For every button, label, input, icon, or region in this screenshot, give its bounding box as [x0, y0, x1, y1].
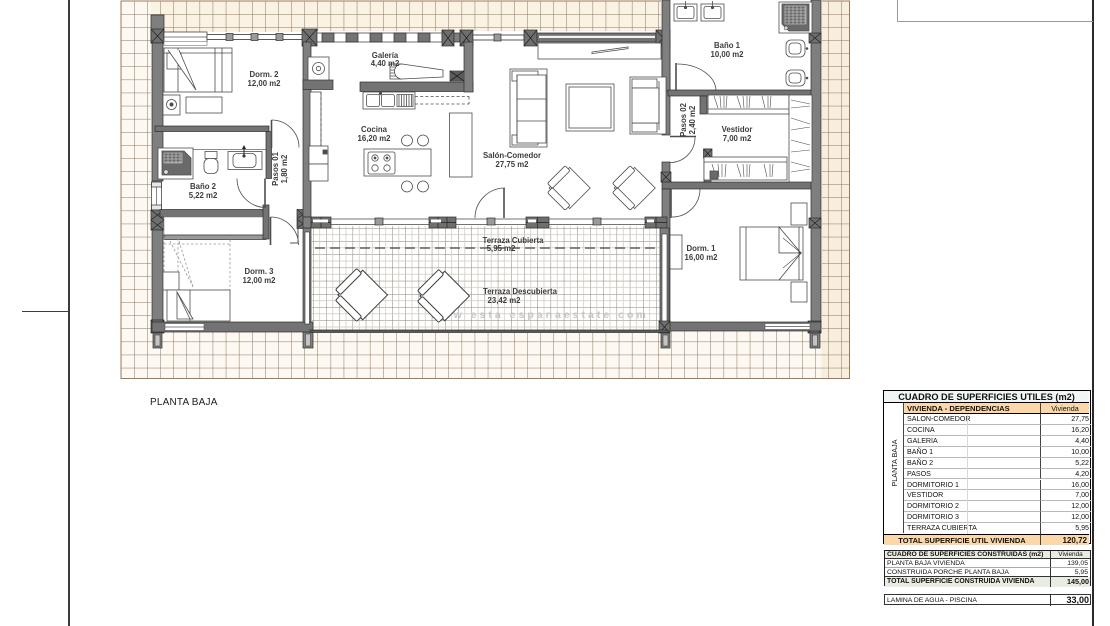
svg-text:Terraza Descubierta: Terraza Descubierta [483, 287, 558, 296]
svg-text:Baño 1: Baño 1 [714, 41, 741, 50]
svg-text:12,00 m2: 12,00 m2 [248, 79, 282, 88]
svg-text:Vestidor: Vestidor [722, 125, 753, 134]
svg-text:Dorm. 1: Dorm. 1 [686, 244, 716, 253]
svg-text:16,00 m2: 16,00 m2 [685, 253, 719, 262]
svg-text:Pasos 01: Pasos 01 [271, 151, 280, 185]
svg-text:Dorm. 2: Dorm. 2 [249, 70, 279, 79]
svg-text:23,42 m2: 23,42 m2 [488, 296, 522, 305]
svg-text:Salón-Comedor: Salón-Comedor [483, 151, 541, 160]
svg-text:2,40 m2: 2,40 m2 [688, 105, 697, 134]
svg-text:5,22 m2: 5,22 m2 [189, 191, 218, 200]
svg-text:4,40 m2: 4,40 m2 [371, 59, 400, 68]
svg-text:5,95 m2: 5,95 m2 [487, 244, 516, 253]
svg-text:1,80 m2: 1,80 m2 [280, 154, 289, 183]
svg-text:16,20 m2: 16,20 m2 [358, 134, 392, 143]
svg-text:www esta espanaestate com: www esta espanaestate com [430, 309, 648, 321]
svg-text:Dorm. 3: Dorm. 3 [244, 267, 274, 276]
svg-text:Pasos 02: Pasos 02 [679, 102, 688, 136]
svg-text:Cocina: Cocina [361, 125, 388, 134]
svg-text:27,75 m2: 27,75 m2 [496, 160, 530, 169]
svg-text:Baño 2: Baño 2 [190, 182, 217, 191]
svg-text:12,00 m2: 12,00 m2 [243, 276, 277, 285]
svg-text:10,00 m2: 10,00 m2 [711, 50, 745, 59]
svg-text:7,00 m2: 7,00 m2 [723, 134, 752, 143]
